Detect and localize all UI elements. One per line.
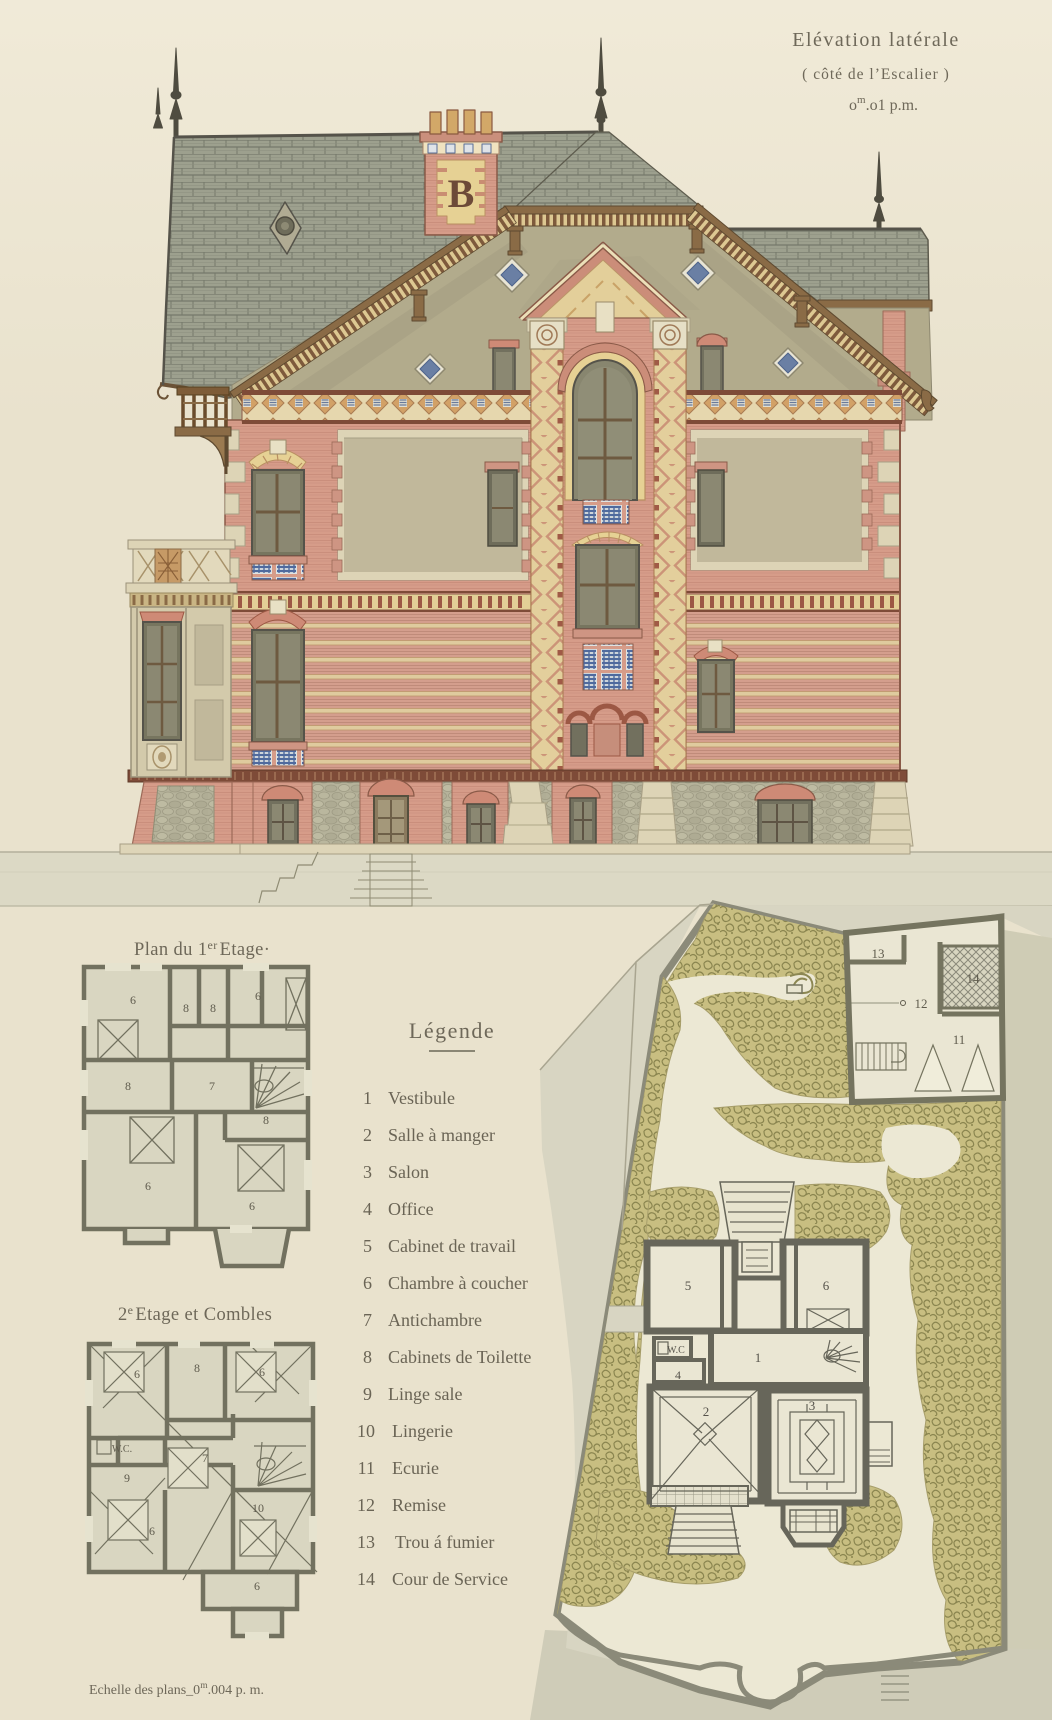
svg-text:W.C: W.C bbox=[667, 1345, 685, 1356]
svg-text:Cabinet de travail: Cabinet de travail bbox=[388, 1236, 516, 1256]
svg-text:9: 9 bbox=[363, 1384, 372, 1404]
svg-text:7: 7 bbox=[363, 1310, 372, 1330]
svg-text:8: 8 bbox=[210, 1001, 216, 1015]
svg-text:6: 6 bbox=[249, 1199, 255, 1213]
svg-text:4: 4 bbox=[675, 1368, 681, 1382]
svg-text:1: 1 bbox=[363, 1088, 372, 1108]
svg-text:Salle à manger: Salle à manger bbox=[388, 1125, 495, 1145]
svg-text:10: 10 bbox=[252, 1501, 264, 1515]
svg-text:6: 6 bbox=[363, 1273, 372, 1293]
svg-text:8: 8 bbox=[363, 1347, 372, 1367]
svg-text:Cabinets de Toilette: Cabinets de Toilette bbox=[388, 1347, 531, 1367]
svg-text:6: 6 bbox=[254, 1579, 260, 1593]
svg-text:3: 3 bbox=[809, 1398, 816, 1413]
svg-text:Ecurie: Ecurie bbox=[392, 1458, 439, 1478]
svg-text:B: B bbox=[448, 171, 475, 216]
svg-text:6: 6 bbox=[149, 1524, 155, 1538]
svg-text:Vestibule: Vestibule bbox=[388, 1088, 455, 1108]
svg-text:14: 14 bbox=[357, 1569, 375, 1589]
svg-text:Trou á fumier: Trou á fumier bbox=[395, 1532, 494, 1552]
svg-text:8: 8 bbox=[263, 1113, 269, 1127]
svg-text:3: 3 bbox=[363, 1162, 372, 1182]
svg-text:2eEtage et Combles: 2eEtage et Combles bbox=[118, 1303, 272, 1325]
svg-text:11: 11 bbox=[953, 1032, 966, 1047]
svg-text:14: 14 bbox=[967, 971, 981, 986]
svg-text:6: 6 bbox=[259, 1365, 265, 1379]
svg-text:6: 6 bbox=[145, 1179, 151, 1193]
svg-text:1: 1 bbox=[755, 1350, 762, 1365]
svg-text:( côté de l’Escalier ): ( côté de l’Escalier ) bbox=[802, 66, 950, 83]
svg-text:7: 7 bbox=[209, 1079, 215, 1093]
svg-text:Remise: Remise bbox=[392, 1495, 446, 1515]
svg-text:Lingerie: Lingerie bbox=[392, 1421, 453, 1441]
svg-text:8: 8 bbox=[194, 1361, 200, 1375]
svg-text:8: 8 bbox=[183, 1001, 189, 1015]
svg-text:Légende: Légende bbox=[409, 1018, 495, 1043]
svg-text:6: 6 bbox=[130, 993, 136, 1007]
svg-text:Plan du 1erEtage·: Plan du 1erEtage· bbox=[134, 938, 270, 960]
svg-text:2: 2 bbox=[363, 1125, 372, 1145]
svg-text:6: 6 bbox=[255, 989, 261, 1003]
svg-text:Salon: Salon bbox=[388, 1162, 429, 1182]
svg-text:9: 9 bbox=[124, 1471, 130, 1485]
svg-text:5: 5 bbox=[685, 1278, 692, 1293]
svg-text:Elévation latérale: Elévation latérale bbox=[792, 29, 959, 51]
svg-text:10: 10 bbox=[357, 1421, 375, 1441]
svg-text:Linge sale: Linge sale bbox=[388, 1384, 462, 1404]
svg-text:Chambre à coucher: Chambre à coucher bbox=[388, 1273, 528, 1293]
svg-text:7: 7 bbox=[202, 1451, 208, 1465]
svg-text:12: 12 bbox=[915, 996, 928, 1011]
svg-text:Echelle des plans_0m.004 p. m.: Echelle des plans_0m.004 p. m. bbox=[89, 1681, 264, 1698]
svg-text:11: 11 bbox=[358, 1458, 375, 1478]
svg-text:Office: Office bbox=[388, 1199, 434, 1219]
svg-text:Antichambre: Antichambre bbox=[388, 1310, 482, 1330]
svg-text:5: 5 bbox=[363, 1236, 372, 1256]
svg-text:6: 6 bbox=[823, 1278, 830, 1293]
svg-text:4: 4 bbox=[363, 1199, 372, 1219]
svg-text:6: 6 bbox=[134, 1367, 140, 1381]
svg-text:W.C.: W.C. bbox=[112, 1444, 132, 1455]
svg-text:Cour de Service: Cour de Service bbox=[392, 1569, 508, 1589]
svg-text:12: 12 bbox=[357, 1495, 375, 1515]
svg-text:13: 13 bbox=[872, 946, 885, 961]
svg-text:8: 8 bbox=[125, 1079, 131, 1093]
svg-text:2: 2 bbox=[703, 1404, 710, 1419]
svg-text:13: 13 bbox=[357, 1532, 375, 1552]
